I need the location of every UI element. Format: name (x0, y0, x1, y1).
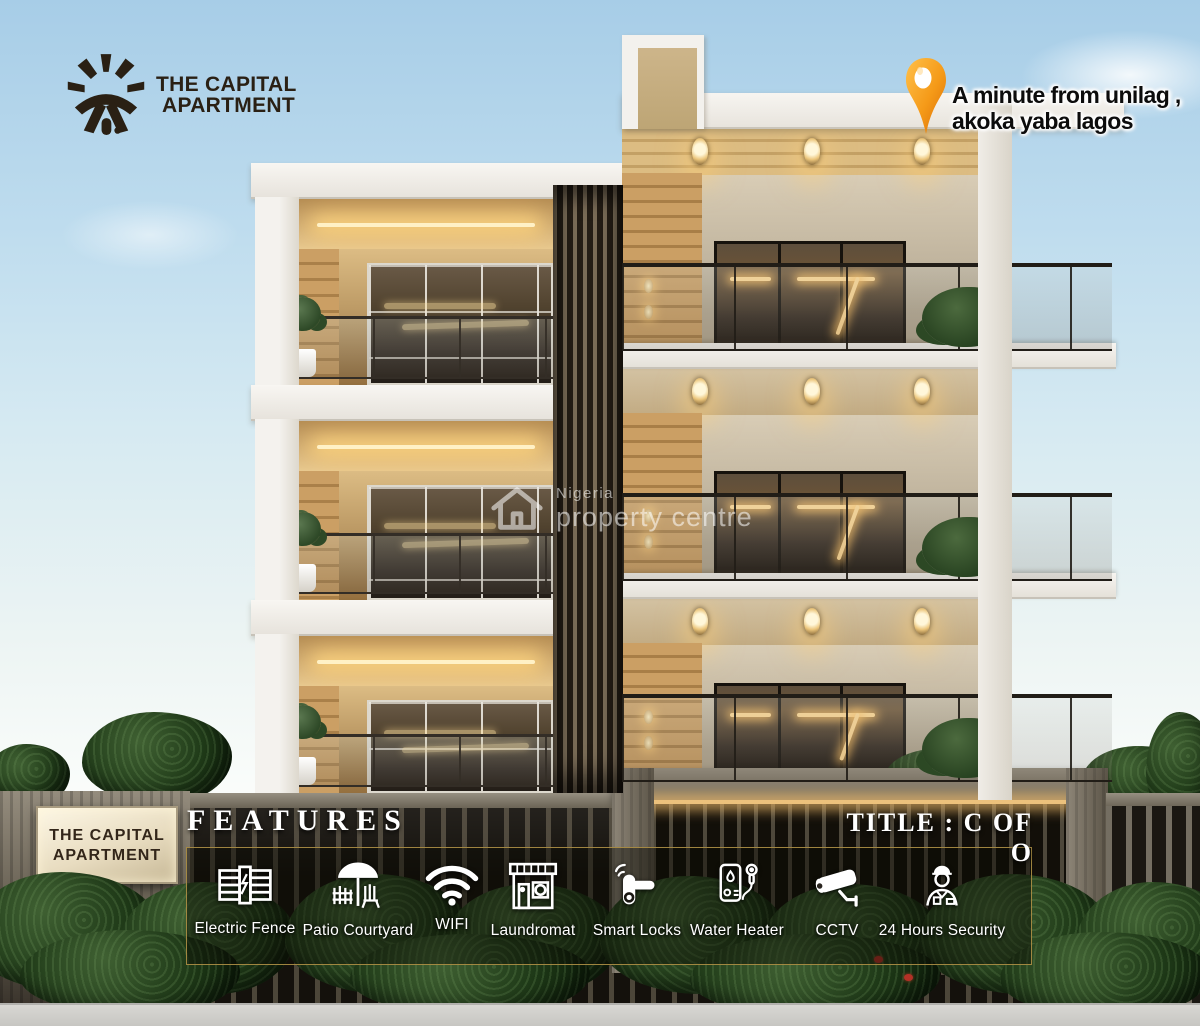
capital-apartment-logo-icon (66, 50, 146, 140)
brand-line1: THE CAPITAL (156, 74, 297, 95)
plant-leaves (299, 705, 321, 739)
poster: THE CAPITAL APARTMENT (0, 0, 1200, 1026)
watermark-text: Nigeria property centre (556, 486, 753, 531)
watermark-house-icon (488, 482, 546, 534)
ceiling-light (692, 378, 708, 405)
gate-led-strip (646, 800, 1074, 804)
ceiling-light (914, 608, 930, 635)
balcony-plant (299, 705, 333, 785)
electric-fence-icon (216, 860, 274, 910)
ceiling-light (804, 138, 820, 165)
balcony-plant (299, 297, 333, 377)
white-pier (255, 419, 299, 600)
brand-logo: THE CAPITAL APARTMENT (66, 50, 297, 140)
smart-locks-icon (609, 860, 665, 912)
balcony-ceiling (299, 421, 553, 473)
balcony-railing (622, 263, 1112, 351)
features-heading: FEATURES (187, 804, 409, 838)
balcony-ceiling (299, 636, 553, 688)
balcony-plant (299, 512, 333, 592)
ceiling-light (914, 378, 930, 405)
ceiling-light (804, 378, 820, 405)
location-caption: A minute from unilag , akoka yaba lagos (952, 82, 1181, 134)
plant-pot (299, 349, 316, 377)
right-floor-3 (622, 599, 1012, 800)
cloud (60, 200, 240, 270)
led-strip (317, 660, 535, 664)
watermark-line2: property centre (556, 504, 753, 531)
led-strip (317, 445, 535, 449)
white-pier (255, 634, 299, 793)
balcony-bay (299, 199, 553, 385)
right-floor-1 (622, 129, 1012, 369)
parapet-panel (638, 48, 697, 129)
fence-cap (1106, 793, 1200, 807)
light-reflection (384, 303, 497, 309)
glass-railing (299, 734, 553, 787)
location-pin-icon (903, 56, 949, 136)
plant-pot (299, 564, 316, 592)
water-heater-icon (711, 860, 763, 912)
light-reflection (384, 523, 497, 529)
right-tower (622, 35, 1012, 800)
pavement (0, 1003, 1200, 1026)
plant-pot (299, 757, 316, 785)
ceiling-soffit (622, 599, 1012, 645)
glass-railing (299, 316, 553, 379)
title-c-of-o: TITLE : C OF O (828, 808, 1033, 868)
feature-label: 24 Hours Security (872, 922, 1012, 940)
laundromat-icon (505, 860, 561, 912)
feature-24h-security: 24 Hours Security (872, 860, 1012, 940)
brand-line2: APARTMENT (162, 95, 297, 116)
rooftop-parapet (622, 35, 704, 129)
signboard-line1: THE CAPITAL (49, 827, 165, 844)
location-line1: A minute from unilag , (952, 82, 1181, 108)
white-pier (255, 197, 299, 385)
patio-courtyard-icon (329, 860, 387, 912)
corner-column (978, 93, 1012, 800)
watermark-line1: Nigeria (556, 486, 753, 501)
watermark: Nigeria property centre (488, 482, 753, 534)
wood-soffit (622, 129, 1012, 175)
brand-wordmark: THE CAPITAL APARTMENT (156, 74, 297, 116)
signboard-line2: APARTMENT (53, 847, 161, 864)
plant-leaves (299, 297, 321, 331)
red-flower (904, 974, 913, 981)
location-line2: akoka yaba lagos (952, 108, 1181, 134)
ceiling-light (804, 608, 820, 635)
led-strip (317, 223, 535, 227)
plant-leaves (299, 512, 321, 546)
ceiling-soffit (622, 369, 1012, 415)
balcony-railing (622, 694, 1112, 782)
ceiling-light (692, 138, 708, 165)
balcony-bay (299, 636, 553, 793)
balcony-ceiling (299, 199, 553, 251)
glass-railing (299, 533, 553, 594)
ceiling-light (692, 608, 708, 635)
ceiling-light (914, 138, 930, 165)
